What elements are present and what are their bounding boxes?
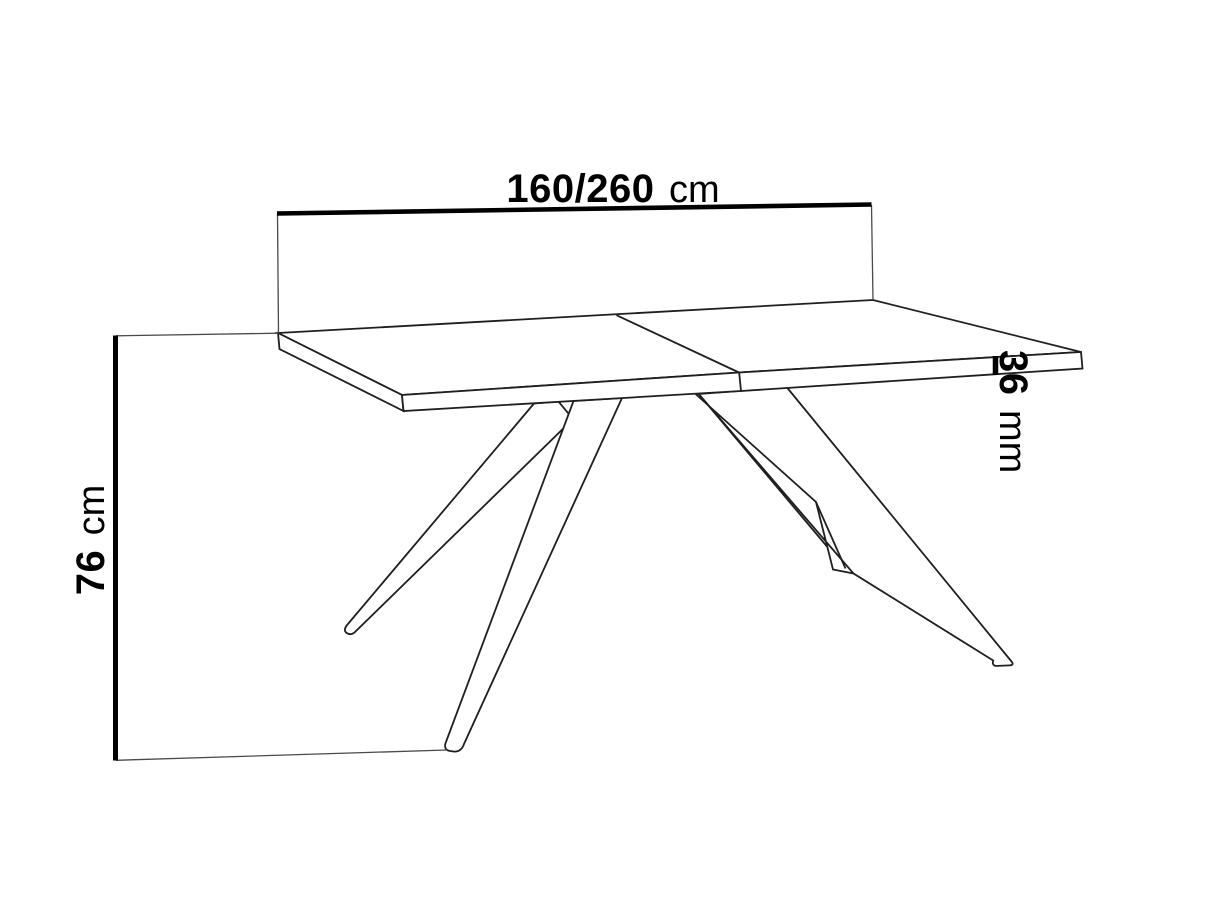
thickness-unit: mm [991,410,1033,473]
table-legs [345,388,1013,752]
tabletop [278,300,1083,411]
width-dimension-label: 160/260 cm [506,167,719,211]
width-value: 160/260 [506,167,654,211]
width-extension-line-left [278,214,279,333]
height-value: 76 [69,550,113,596]
table-leg-front-right [699,388,1013,666]
table-dimension-diagram: 160/260 cm 76 cm 36 mm [0,0,1214,911]
height-extension-line-top [116,333,279,336]
height-unit: cm [71,485,113,536]
height-extension-line-bottom [116,750,447,760]
width-unit: cm [669,169,720,211]
height-dimension-label: 76 cm [69,485,113,596]
thickness-dimension: 36 mm [991,350,1035,473]
thickness-dimension-label: 36 mm [991,350,1035,473]
technical-drawing-page: 160/260 cm 76 cm 36 mm [0,0,1214,911]
thickness-value: 36 [991,350,1035,396]
width-extension-line-right [872,205,874,300]
